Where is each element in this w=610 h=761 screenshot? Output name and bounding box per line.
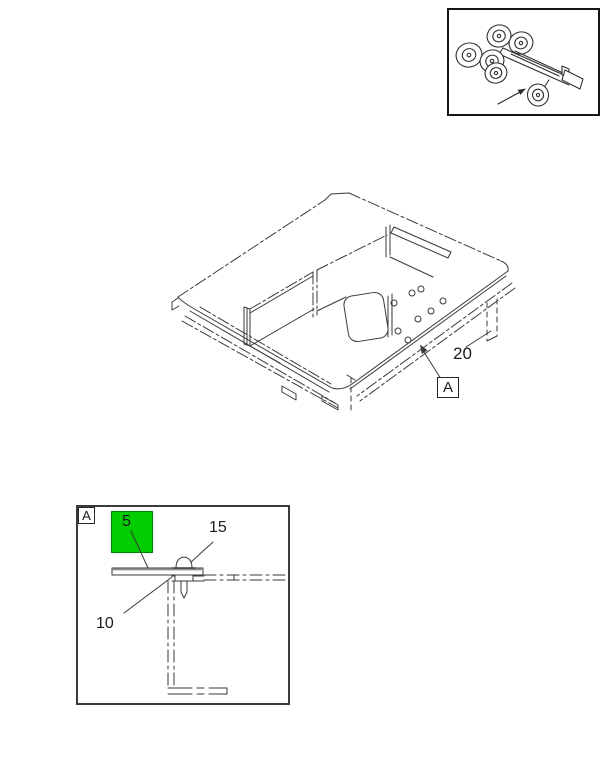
vehicle-locator-inset — [447, 8, 600, 116]
leader-line-5 — [131, 531, 148, 568]
cross-section-illustration — [78, 507, 288, 703]
detail-view-a: 5 — [76, 505, 290, 705]
detail-arrow — [424, 352, 441, 379]
leader-line-15 — [190, 542, 213, 563]
detail-view-flag-a[interactable]: A — [437, 377, 459, 398]
truck-chassis-icon — [449, 10, 598, 114]
part-callout-15[interactable]: 15 — [209, 519, 227, 536]
parts-diagram-page: 20 A 5 — [0, 0, 610, 761]
detail-frame-label-a: A — [78, 507, 95, 524]
part-callout-10[interactable]: 10 — [96, 615, 114, 632]
locator-arrow-icon — [498, 92, 520, 104]
part-callout-20[interactable]: 20 — [453, 345, 472, 363]
leader-line-10 — [124, 577, 172, 613]
panel-assembly-illustration — [140, 178, 545, 423]
